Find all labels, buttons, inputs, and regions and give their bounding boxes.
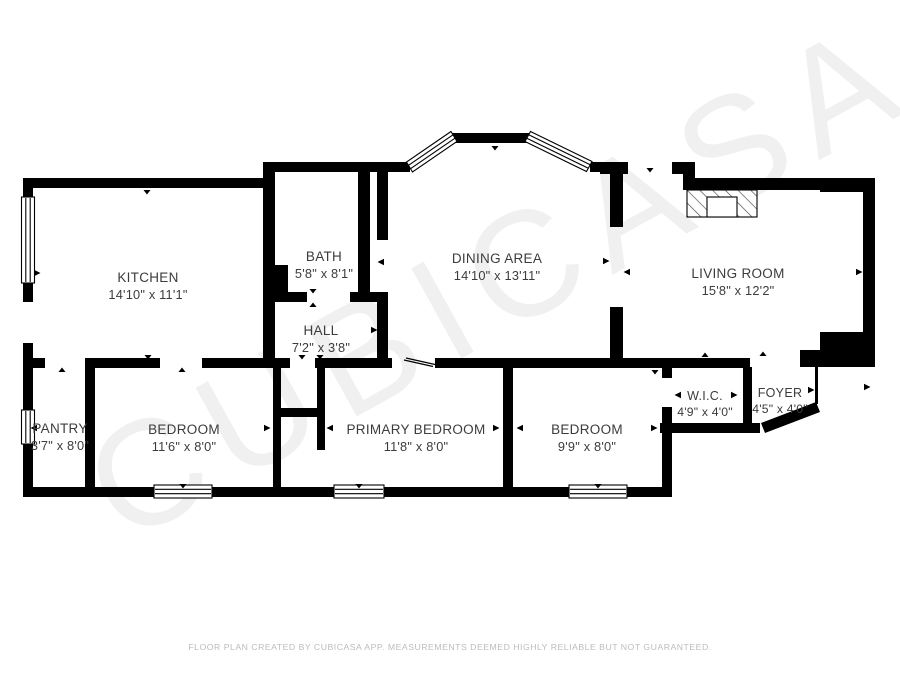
room-dims: 3'7" x 8'0"	[31, 437, 89, 454]
dimension-arrow-icon	[856, 269, 863, 275]
room-label-kitchen: KITCHEN 14'10" x 11'1"	[108, 269, 187, 303]
room-name: PANTRY	[31, 420, 89, 437]
room-label-foyer: FOYER 4'5" x 4'0"	[752, 385, 808, 417]
dimension-arrow-icon	[59, 368, 66, 373]
dimension-arrow-icon	[702, 353, 709, 358]
dimension-arrow-icon	[864, 384, 871, 390]
room-dims: 11'6" x 8'0"	[148, 438, 220, 455]
dimension-arrow-icon	[492, 146, 499, 151]
fireplace-icon	[687, 190, 757, 217]
floorplan-page: CUBICASA	[0, 0, 900, 675]
room-name: DINING AREA	[452, 250, 542, 267]
room-name: BEDROOM	[148, 421, 220, 438]
dimension-arrow-icon	[144, 190, 151, 195]
room-label-living-room: LIVING ROOM 15'8" x 12'2"	[691, 265, 784, 299]
room-label-pantry: PANTRY 3'7" x 8'0"	[31, 420, 89, 454]
room-name: FOYER	[752, 385, 808, 401]
room-label-wic: W.I.C. 4'9" x 4'0"	[677, 388, 733, 420]
room-dims: 9'9" x 8'0"	[551, 438, 623, 455]
room-name: BEDROOM	[551, 421, 623, 438]
dimension-arrow-icon	[652, 370, 659, 375]
room-dims: 14'10" x 11'1"	[108, 286, 187, 303]
dimension-arrow-icon	[651, 425, 658, 431]
room-label-hall: HALL 7'2" x 3'8"	[292, 322, 350, 356]
dimension-arrow-icon	[493, 425, 500, 431]
room-dims: 15'8" x 12'2"	[691, 282, 784, 299]
room-label-bath: BATH 5'8" x 8'1"	[295, 248, 353, 282]
dimension-arrow-icon	[517, 425, 524, 431]
room-label-bedroom-1: BEDROOM 11'6" x 8'0"	[148, 421, 220, 455]
room-dims: 7'2" x 3'8"	[292, 339, 350, 356]
room-dims: 5'8" x 8'1"	[295, 265, 353, 282]
room-label-primary-bedroom: PRIMARY BEDROOM 11'8" x 8'0"	[346, 421, 485, 455]
room-dims: 14'10" x 13'11"	[452, 267, 542, 284]
dimension-arrow-icon	[808, 387, 815, 393]
room-dims: 4'5" x 4'0"	[752, 401, 808, 417]
room-label-dining-area: DINING AREA 14'10" x 13'11"	[452, 250, 542, 284]
dimension-arrow-icon	[34, 270, 41, 276]
room-dims: 11'8" x 8'0"	[346, 438, 485, 455]
room-name: PRIMARY BEDROOM	[346, 421, 485, 438]
dimension-arrow-icon	[760, 352, 767, 357]
room-label-bedroom-2: BEDROOM 9'9" x 8'0"	[551, 421, 623, 455]
footer-disclaimer: FLOOR PLAN CREATED BY CUBICASA APP. MEAS…	[0, 642, 900, 652]
room-name: KITCHEN	[108, 269, 187, 286]
room-name: HALL	[292, 322, 350, 339]
room-name: BATH	[295, 248, 353, 265]
room-name: LIVING ROOM	[691, 265, 784, 282]
floorplan-drawing: CUBICASA	[0, 0, 900, 675]
room-dims: 4'9" x 4'0"	[677, 404, 733, 420]
room-name: W.I.C.	[677, 388, 733, 404]
